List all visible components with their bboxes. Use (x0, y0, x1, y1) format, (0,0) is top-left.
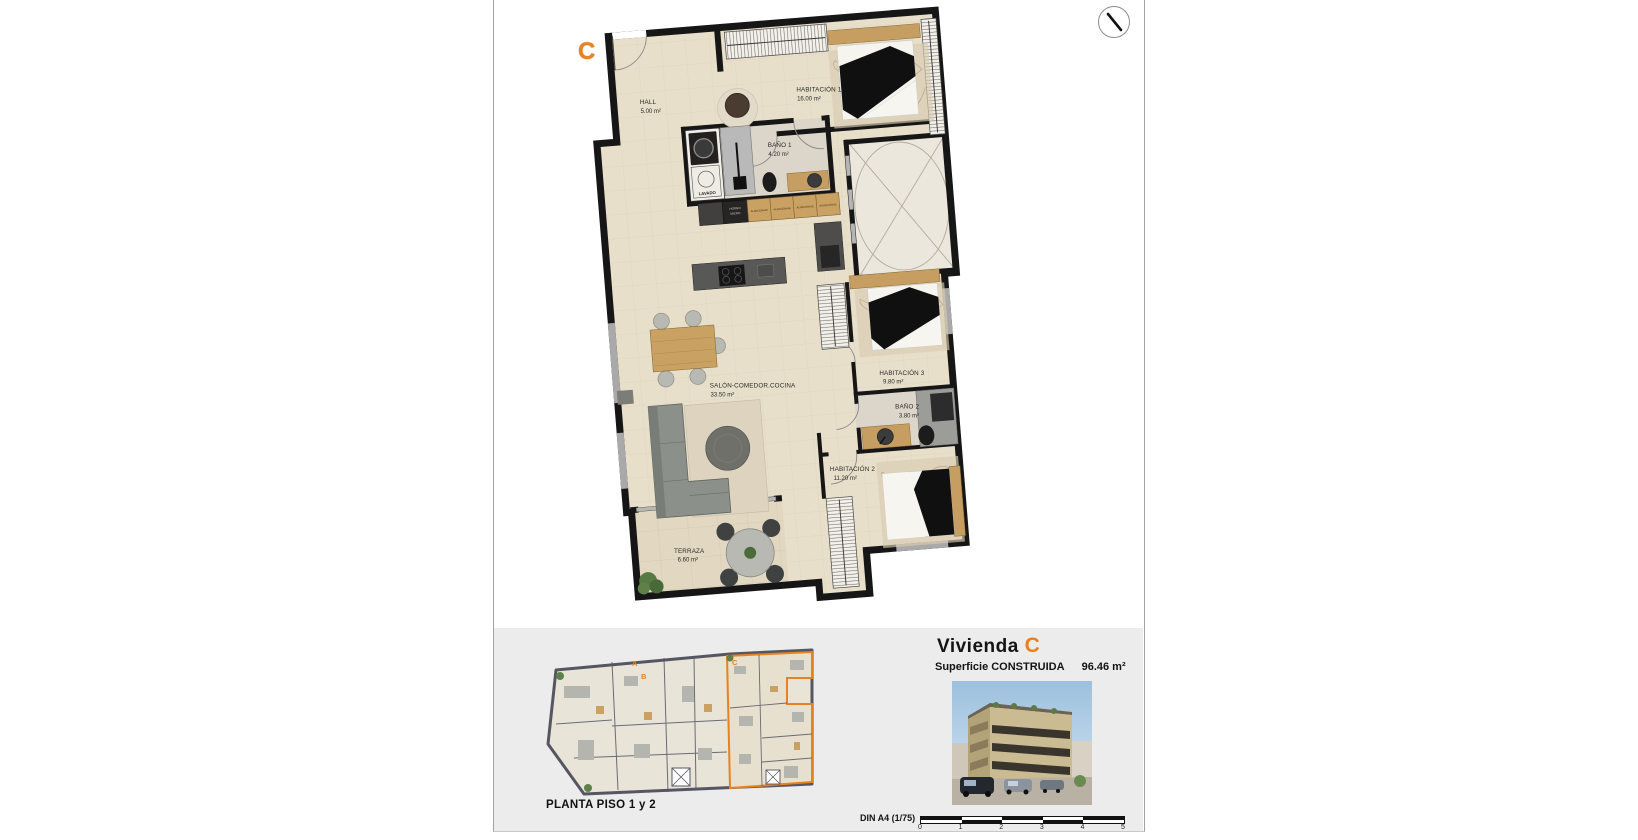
bedroom2-furniture (876, 456, 966, 548)
scale-bar (920, 816, 1125, 824)
scale-tick-5: 5 (1121, 824, 1125, 831)
scale-tick-4: 4 (1080, 824, 1084, 831)
surface-value: 96.46 m² (1082, 661, 1126, 673)
scale-tick-2: 2 (999, 824, 1003, 831)
patio-lightwell (848, 134, 957, 278)
room-bath1-name: BAÑO 1 (768, 140, 792, 149)
room-hall-area: 5.00 m² (641, 109, 661, 115)
scale-tick-1: 1 (959, 824, 963, 831)
scale-label: DIN A4 (1/75) (860, 813, 915, 823)
room-bedroom2-area: 11.20 m² (834, 476, 857, 482)
overview-caption: PLANTA PISO 1 y 2 (546, 799, 656, 811)
surface-label: Superficie CONSTRUIDA (935, 661, 1065, 673)
room-bedroom3-area: 9.80 m² (883, 380, 903, 386)
scale-tick-3: 3 (1040, 824, 1044, 831)
living-room-furniture (648, 398, 769, 521)
plan-sheet-page: C (493, 0, 1145, 832)
room-bedroom1-name: HABITACIÓN 1 (796, 85, 841, 94)
bedroom3-furniture (849, 268, 949, 357)
overview-unit-c (727, 652, 812, 788)
building-photo (952, 681, 1092, 805)
floor-plan: LAVADO HORNO MICRO ALMACENAJE ALMACENA (583, 0, 991, 627)
room-bath1-area: 4.20 m² (768, 152, 788, 158)
overview-plan: A B C (544, 646, 856, 798)
room-bedroom3-name: HABITACIÓN 3 (879, 368, 924, 377)
unit-title: Vivienda C (937, 634, 1040, 658)
overview-stairs (672, 768, 690, 786)
oven-label-bottom: MICRO (730, 211, 741, 216)
unit-title-prefix: Vivienda (937, 636, 1019, 657)
overview-letter-b: B (641, 672, 647, 681)
surface-line: Superficie CONSTRUIDA 96.46 m² (935, 661, 1126, 673)
room-bath2-area: 3.80 m² (899, 413, 919, 419)
room-living-name: SALÓN-COMEDOR.COCINA (710, 381, 796, 390)
room-bedroom1-area: 16.00 m² (797, 97, 821, 103)
overview-letter-c: C (732, 658, 738, 667)
room-hall-name: HALL (640, 99, 657, 106)
scale-tick-0: 0 (918, 824, 922, 831)
room-terrace-area: 6.60 m² (678, 558, 698, 564)
overview-letter-a: A (632, 659, 638, 668)
room-bedroom2-name: HABITACIÓN 2 (830, 464, 875, 473)
room-bath2-name: BAÑO 2 (895, 402, 919, 411)
unit-title-letter: C (1025, 634, 1041, 657)
footer-panel: A B C PLANTA PISO 1 y 2 Vivienda C Super… (494, 628, 1143, 831)
sheet-canvas: C (0, 0, 1638, 840)
north-arrow-icon (1094, 4, 1134, 44)
room-terrace-name: TERRAZA (674, 548, 705, 555)
scale-ticks: 0 1 2 3 4 5 (920, 824, 1123, 834)
room-living-area: 33.50 m² (711, 392, 735, 398)
